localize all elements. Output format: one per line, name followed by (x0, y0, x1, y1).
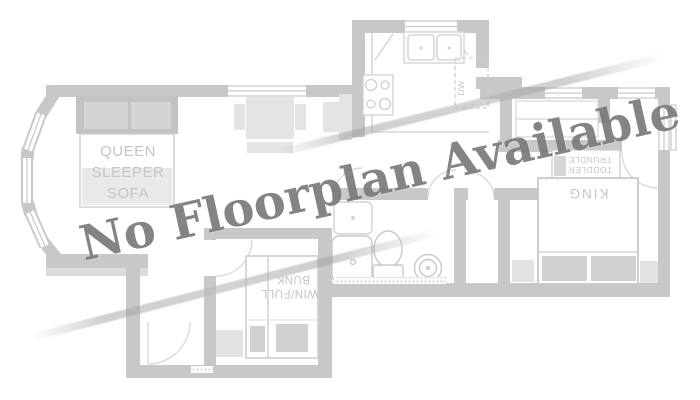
window (405, 20, 457, 33)
trundle-label-line1: TODDLER (568, 165, 612, 175)
stove (363, 75, 393, 115)
queen-sleeper-sofa: QUEEN SLEEPER SOFA (76, 96, 178, 207)
wall-segment (204, 365, 332, 378)
king-label: KING (567, 186, 608, 201)
sofa-label-line1: QUEEN (100, 143, 156, 160)
sofa-cushion (131, 102, 171, 129)
nightstand (640, 261, 658, 283)
sofa-label-line3: SOFA (107, 185, 149, 202)
wall-segment (454, 200, 466, 285)
king-bed: KING (538, 178, 638, 284)
wall-segment (318, 228, 332, 378)
dresser (216, 330, 243, 357)
bunk-label-line1: TWIN/FULL (260, 287, 325, 299)
sofa-label-line2: SLEEPER (92, 164, 165, 181)
king-pillow (542, 256, 587, 281)
tile-strip (334, 277, 446, 284)
sofa-cushion (84, 102, 128, 129)
king-pillow (591, 256, 636, 281)
wall-segment (498, 200, 510, 285)
no-floorplan-placeholder: QUEEN SLEEPER SOFA (0, 0, 700, 400)
bay-wall-corner (40, 88, 58, 116)
bunk-pillow (250, 326, 265, 352)
wall-segment (46, 85, 354, 97)
window (228, 85, 306, 97)
wall-segment (126, 268, 140, 378)
bunk-pillow (276, 324, 308, 352)
wall-segment (476, 20, 489, 68)
nightstand (512, 260, 534, 282)
wall-segment (332, 283, 670, 297)
dishwasher-label: DW (456, 80, 466, 95)
entry-sill (191, 366, 213, 373)
door-arc (148, 322, 190, 364)
